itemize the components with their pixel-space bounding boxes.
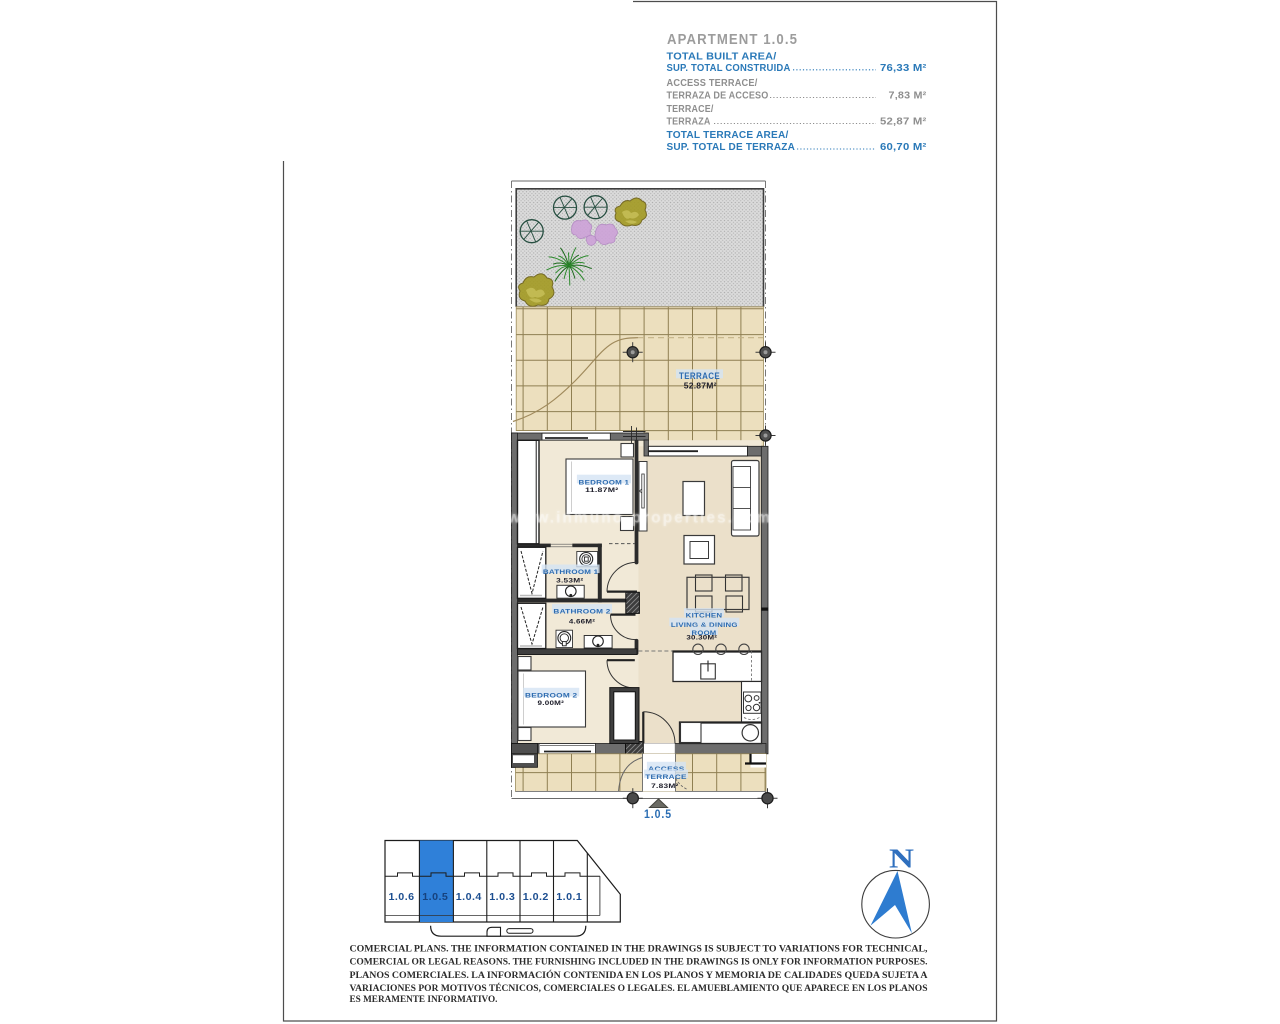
svg-text:TERRACE: TERRACE (679, 371, 720, 381)
svg-text:9.00M²: 9.00M² (538, 700, 565, 707)
svg-text:SUP. TOTAL CONSTRUIDA: SUP. TOTAL CONSTRUIDA (667, 63, 791, 74)
svg-text:1.0.5: 1.0.5 (422, 892, 448, 903)
svg-text:30.30M²: 30.30M² (686, 635, 718, 642)
svg-text:TOTAL TERRACE AREA/: TOTAL TERRACE AREA/ (667, 130, 789, 141)
svg-text:3.53M²: 3.53M² (556, 578, 584, 585)
svg-text:11.87M²: 11.87M² (585, 487, 619, 494)
svg-text:TERRACE/: TERRACE/ (667, 104, 714, 115)
svg-text:BEDROOM 1: BEDROOM 1 (579, 479, 630, 486)
svg-text:TERRACE: TERRACE (645, 774, 687, 781)
svg-text:76,33 M²: 76,33 M² (880, 63, 927, 74)
svg-text:BATHROOM 1: BATHROOM 1 (543, 569, 599, 576)
svg-text:BATHROOM 2: BATHROOM 2 (553, 609, 610, 616)
svg-text:TOTAL BUILT AREA/: TOTAL BUILT AREA/ (667, 52, 777, 63)
svg-text:1.0.1: 1.0.1 (556, 892, 582, 903)
svg-text:52,87 M²: 52,87 M² (880, 117, 927, 128)
svg-text:PLANOS COMERCIALES. LA INFORMA: PLANOS COMERCIALES. LA INFORMACIÓN CONTE… (350, 970, 929, 980)
svg-text:1.0.4: 1.0.4 (456, 892, 482, 903)
svg-text:COMERCIAL OR LEGAL REASONS. TH: COMERCIAL OR LEGAL REASONS. THE FURNISHI… (350, 957, 928, 967)
svg-text:COMERCIAL PLANS. THE INFORMATI: COMERCIAL PLANS. THE INFORMATION CONTAIN… (350, 944, 928, 954)
svg-text:BEDROOM 2: BEDROOM 2 (525, 692, 577, 699)
svg-text:N: N (889, 843, 914, 873)
svg-text:www.inmuno-properties.com: www.inmuno-properties.com (507, 510, 772, 527)
svg-text:TERRAZA: TERRAZA (667, 117, 711, 128)
svg-text:ACCESS TERRACE/: ACCESS TERRACE/ (667, 78, 758, 89)
svg-text:TERRAZA DE ACCESO: TERRAZA DE ACCESO (667, 91, 769, 102)
svg-text:4.66M²: 4.66M² (569, 618, 596, 625)
svg-text:1.0.3: 1.0.3 (489, 892, 515, 903)
svg-text:SUP. TOTAL DE TERRAZA: SUP. TOTAL DE TERRAZA (667, 142, 796, 153)
svg-text:1.0.2: 1.0.2 (523, 892, 549, 903)
svg-text:7,83 M²: 7,83 M² (889, 91, 928, 102)
svg-text:ES MERAMENTE INFORMATIVO.: ES MERAMENTE INFORMATIVO. (350, 994, 498, 1004)
svg-text:60,70 M²: 60,70 M² (880, 142, 927, 153)
svg-text:1.0.6: 1.0.6 (389, 892, 415, 903)
svg-text:7.83M²: 7.83M² (651, 783, 679, 790)
svg-text:APARTMENT 1.0.5: APARTMENT 1.0.5 (667, 32, 798, 48)
svg-text:52.87M²: 52.87M² (684, 381, 717, 390)
svg-text:VARIACIONES POR MOTIVOS TÉCNIC: VARIACIONES POR MOTIVOS TÉCNICOS, COMERC… (350, 983, 928, 993)
svg-text:1.0.5: 1.0.5 (644, 809, 672, 821)
